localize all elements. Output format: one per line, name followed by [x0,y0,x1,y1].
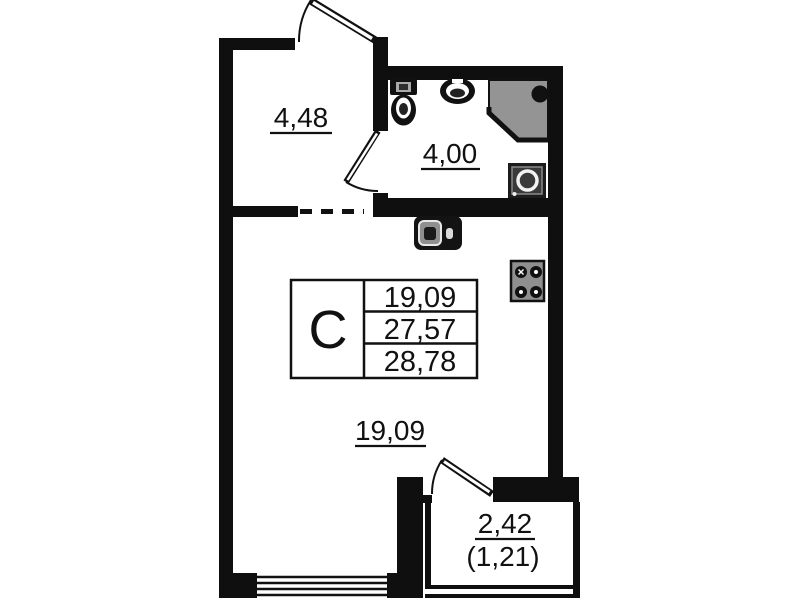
wall-sill-block-right [387,573,423,598]
stove-icon [511,261,544,301]
wall-left [219,38,233,573]
window [257,577,390,595]
wall-hall-partition-stub [233,206,298,217]
wall-sill-block-left [219,573,257,598]
balcony-wall-right [573,502,580,598]
toilet-cistern-button [399,84,408,90]
wall-bathroom-bottom [373,198,563,217]
living-area-label: 19,09 [355,415,425,446]
toilet-bowl-drain [399,103,408,115]
floor-plan-drawing: C 19,09 27,57 28,78 4,48 4,00 19,09 2,42… [0,0,799,600]
balcony-wall-bottom-outer [425,594,580,598]
area-stamp-table: C 19,09 27,57 28,78 [291,280,477,378]
wall-right [548,66,563,502]
washing-machine-icon [508,163,546,198]
balcony-door-leaf-core [444,462,490,493]
entrance-door [299,0,375,42]
stamp-total-area-with-balcony: 28,78 [384,346,457,378]
wall-balcony-header [493,477,579,502]
hallway-area-label: 4,48 [274,102,329,133]
balcony-door-arc [432,460,442,494]
balcony-wall-left [425,502,431,587]
bathroom-door-arc [346,182,378,191]
floor-plan: C 19,09 27,57 28,78 4,48 4,00 19,09 2,42… [0,0,799,600]
balcony-reduced-area-label: (1,21) [466,541,539,572]
basin-faucet-gap [452,79,463,83]
bathroom-door-leaf-core [348,134,378,181]
basin-drain [450,89,465,98]
washer-knob [513,192,517,196]
kitchen-sink-icon [414,216,462,250]
toilet-icon [390,79,417,126]
shower-drain [532,86,549,103]
bathroom-area-label: 4,00 [423,138,478,169]
balcony-door [432,460,492,494]
entrance-door-arc [299,0,311,42]
stamp-total-area: 27,57 [384,314,457,346]
kitchen-sink-drain [424,227,436,240]
balcony-wall-bottom-inner [425,585,580,589]
shower-cabin-icon [489,80,549,140]
entrance-door-leaf-core [313,3,372,39]
stamp-type-label: C [309,300,348,360]
balcony-area-label: 2,42 [478,508,533,539]
kitchen-sink-faucet [446,228,453,239]
wall-entry-connector [373,37,388,131]
washbasin-icon [440,78,475,104]
wall-top-hallway [219,38,295,50]
bathroom-door [346,131,378,191]
wall-bathroom-top [373,66,563,80]
stamp-living-area: 19,09 [384,282,457,314]
wall-pier-notch [423,495,432,503]
